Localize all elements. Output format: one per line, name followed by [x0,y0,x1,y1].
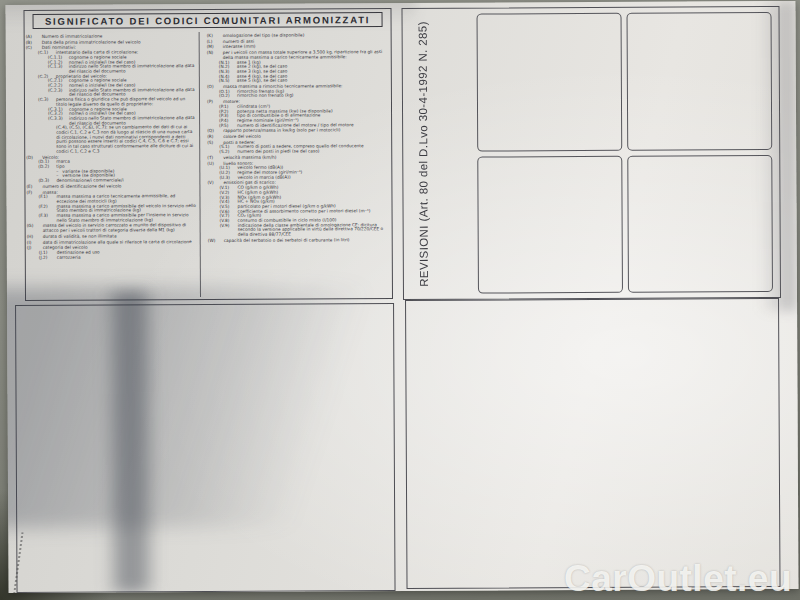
code-text: durata di validità, se non illimitata [43,233,117,238]
code-label: (C.3.3) [48,117,63,122]
codes-columns: (A)Numero di immatricolazione(B)Data del… [25,30,392,298]
code-text: veicolo in marcia (dB(A)) [237,174,290,179]
code-text: Data della prima immatricolazione del ve… [42,39,141,45]
code-text: massa massima a carico ammissibile per l… [57,212,189,222]
codes-column-left: (A)Numero di immatricolazione(B)Data del… [25,32,200,298]
harmonised-codes-section: SIGNIFICATO DEI CODICI COMUNITARI ARMONI… [23,8,393,301]
code-label: (C.2.3) [48,89,63,94]
revisioni-vertical-label: REVISIONI (Art. 80 del D.Lvo 30-4-1992 N… [416,9,430,299]
revision-stamp-box [477,155,623,293]
photo-background: SIGNIFICATO DEI CODICI COMUNITARI ARMONI… [0,0,800,600]
annotations-box-right [405,298,781,589]
code-row: (G)massa del veicolo in servizio carrozz… [26,223,198,233]
code-label: (T) [207,156,213,161]
code-text: Numero di immatricolazione [42,34,103,39]
code-row: (W)capacità del serbatoio o dei serbatoi… [207,238,390,244]
code-text: colore del veicolo [223,134,261,139]
code-label: (F.2) [39,204,48,209]
code-text: carrozzeria [57,254,81,259]
code-label: (C.1.3) [48,65,63,70]
revision-stamp-box [477,13,623,151]
code-row: (C.4), (C.5), (C.6), (C.7): se un cambia… [25,125,197,154]
code-text: velocità massima (km/h) [223,155,276,160]
code-label: (J.2) [39,255,48,260]
code-text: numero di identificazione del motore / t… [237,122,353,128]
code-text: capacità del serbatoio o dei serbatoi di… [224,237,350,243]
code-label: (V.9) [220,224,230,229]
code-label: (E) [26,185,32,190]
code-text: numero di identificazione del veicolo [42,183,121,188]
code-label: (W) [208,239,216,244]
code-label: (G) [27,224,34,229]
code-text: (C.4), (C.5), (C.6), (C.7): se un cambia… [56,124,193,153]
code-text: rimorchio non frenato (kg) [237,93,294,98]
codes-column-right: (K)omologazione del tipo (se disponibile… [199,31,392,297]
code-row: (V.9)indicazione della classe ambientale… [207,223,390,238]
code-text: numero dei posti in piedi (se del caso) [237,149,319,154]
code-text: interasse (mm) [223,44,256,49]
codes-section-title: SIGNIFICATO DEI CODICI COMUNITARI ARMONI… [33,12,383,29]
revisioni-section: REVISIONI (Art. 80 del D.Lvo 30-4-1992 N… [401,6,781,300]
document-paper: SIGNIFICATO DEI CODICI COMUNITARI ARMONI… [5,1,798,593]
revision-stamp-box [627,155,773,293]
code-text: data di immatricolazione alla quale si r… [43,239,192,245]
code-label: (F.3) [39,214,48,219]
code-label: (N) [207,51,214,56]
code-text: indicazione della classe ambientale di o… [238,222,384,237]
annotations-box-left [15,303,396,593]
code-text: numero di assi [223,38,255,43]
revision-stamp-box [627,12,773,150]
code-text: rapporto potenza/massa in kw/kg (solo pe… [223,128,340,134]
revision-stamp-grid [477,12,773,294]
code-text: omologazione del tipo (se disponibile) [223,33,305,38]
code-label: (C.3) [38,98,48,103]
watermark-caroutlet: CarOutlet.eu [564,558,792,600]
code-text: per i veicoli con massa totale superiore… [223,49,382,60]
code-text: massa del veicolo in servizio carrozzato… [43,223,186,233]
code-row: (J.2)carrozzeria [26,255,198,261]
code-label: (H) [27,235,34,240]
code-text: denominazione/i commerciale/i [56,178,123,183]
code-text: indirizzo nello Stato membro di immatric… [69,63,195,73]
code-text: asse 5 (kg), se del caso [237,78,288,83]
code-label: (F.1) [38,195,47,200]
